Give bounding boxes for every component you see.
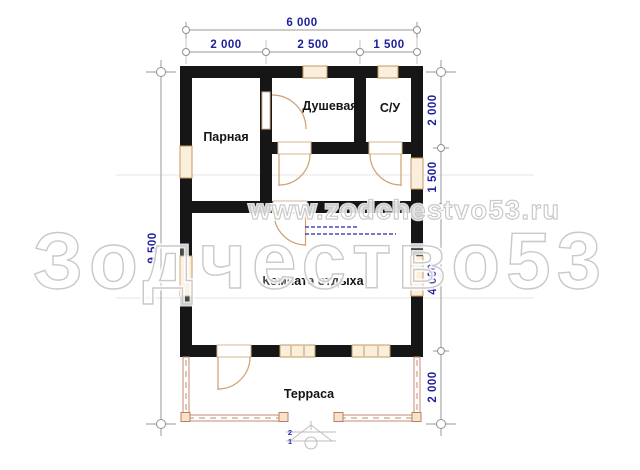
dimension-node (263, 49, 270, 56)
floor-plan-sheet: 6 000 2 000 2 500 1 500 9 500 2 000 1 50… (0, 0, 640, 470)
door-opening-terrace (217, 345, 251, 357)
door-opening-wc (369, 142, 402, 154)
axis-marker (157, 420, 166, 429)
dim-right-seg-4: 2 000 (427, 371, 439, 402)
dimension-node (438, 145, 445, 152)
window-lounge-south-1 (280, 345, 315, 357)
dim-right-seg-2: 1 500 (427, 161, 439, 192)
terrace-post (279, 413, 288, 422)
room-label-shower: Душевая (302, 99, 357, 113)
dim-right-seg-1: 2 000 (427, 94, 439, 125)
step-arrow-right (311, 425, 332, 441)
step-arrow-left (290, 425, 311, 441)
step-number-1: 1 (288, 437, 292, 446)
room-label-wc: С/У (380, 101, 401, 115)
step-marker-circle (305, 437, 317, 449)
step-number-2: 2 (288, 428, 292, 437)
watermark-brand: Зодчество53 (33, 216, 607, 305)
dim-top-total: 6 000 (286, 17, 317, 29)
entry-steps: 2 1 (286, 421, 336, 449)
dim-top-seg-3: 1 500 (373, 39, 404, 51)
terrace-post (181, 413, 190, 422)
door-opening-shower (278, 142, 311, 154)
dimension-node (438, 348, 445, 355)
window-right-corridor (411, 158, 423, 189)
dimension-node (414, 27, 421, 34)
window-lounge-south-2 (352, 345, 390, 357)
axis-marker (157, 68, 166, 77)
dimension-node (183, 27, 190, 34)
door-swing-terrace (218, 357, 250, 389)
dimension-node (414, 49, 421, 56)
axis-marker (437, 420, 446, 429)
window-left-steamroom (180, 146, 192, 178)
watermark-layer: www.zodchestvo53.ru www.zodchestvo53.ru … (33, 195, 607, 305)
door-swing-steamroom (272, 95, 306, 129)
room-label-steam-room: Парная (203, 130, 248, 144)
terrace-post (412, 413, 421, 422)
wall-steamroom-right (260, 66, 272, 213)
window-wc (378, 66, 398, 78)
dimension-node (357, 49, 364, 56)
dim-top-seg-2: 2 500 (297, 39, 328, 51)
dim-top-seg-1: 2 000 (210, 39, 241, 51)
room-label-terrace: Терраса (284, 387, 335, 401)
window-shower (303, 66, 327, 78)
door-opening-steamroom (262, 92, 270, 129)
floor-plan-drawing: 6 000 2 000 2 500 1 500 9 500 2 000 1 50… (0, 0, 640, 470)
door-swing-wc (370, 154, 401, 185)
door-swing-shower (279, 154, 310, 185)
dimension-node (183, 49, 190, 56)
terrace-post (334, 413, 343, 422)
axis-marker (437, 68, 446, 77)
